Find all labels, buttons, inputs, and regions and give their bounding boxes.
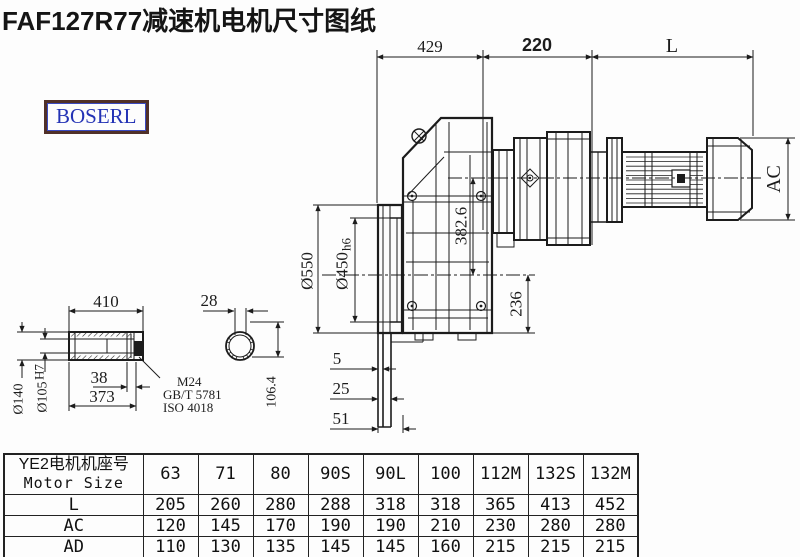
motor-fins — [626, 157, 703, 203]
svg-text:Ø450: Ø450 — [333, 252, 352, 290]
hollow-shaft-view — [69, 332, 160, 378]
col-63: 63 — [143, 454, 198, 494]
r77-input-stage — [493, 132, 607, 247]
dim-140: Ø140 — [12, 383, 27, 414]
dim-5: 5 — [333, 349, 342, 368]
dim-28: 28 — [201, 291, 218, 310]
dim-AC: AC — [763, 165, 785, 193]
table-row-AD: AD 110 130 135 145 145 160 215 215 215 — [4, 536, 638, 557]
svg-text:H7: H7 — [32, 364, 47, 380]
centerlines — [322, 178, 762, 275]
dimension-lines — [313, 50, 795, 433]
gearbox-housing — [403, 118, 492, 340]
dim-550: Ø550 — [298, 252, 317, 290]
header-motor-size: YE2电机机座号 Motor Size — [4, 454, 143, 494]
table-row-AC: AC 120 145 170 190 190 210 230 280 280 — [4, 515, 638, 536]
col-80: 80 — [253, 454, 308, 494]
col-132S: 132S — [528, 454, 583, 494]
dim-373: 373 — [89, 387, 115, 406]
output-flange — [378, 205, 403, 333]
fan-cowl — [707, 138, 752, 220]
mounting-foot — [378, 333, 423, 427]
dim-106-4: 106.4 — [265, 376, 280, 408]
dim-429: 429 — [417, 37, 443, 56]
table-row-L: L 205 260 280 288 318 318 365 413 452 — [4, 494, 638, 515]
col-71: 71 — [198, 454, 253, 494]
svg-text:h6: h6 — [339, 238, 354, 252]
motor — [607, 138, 752, 222]
dim-38: 38 — [91, 368, 108, 387]
dim-105H7: Ø105 H7 — [32, 364, 51, 413]
dim-410: 410 — [93, 292, 119, 311]
col-90L: 90L — [363, 454, 418, 494]
svg-text:Ø105: Ø105 — [36, 381, 51, 412]
col-100: 100 — [418, 454, 473, 494]
dim-51: 51 — [333, 409, 350, 428]
col-112M: 112M — [473, 454, 528, 494]
drawing-page: FAF127R77减速机电机尺寸图纸 BOSERL — [0, 0, 800, 557]
col-90S: 90S — [308, 454, 363, 494]
label-iso4018: ISO 4018 — [163, 400, 213, 415]
dim-25: 25 — [333, 379, 350, 398]
dimension-labels: 429 220 L AC 382.6 236 Ø550 Ø450 h6 5 25… — [12, 35, 786, 428]
dim-220: 220 — [522, 35, 552, 55]
col-132M: 132M — [583, 454, 638, 494]
dim-450h6: Ø450 h6 — [333, 238, 354, 290]
bore-end-view — [226, 308, 254, 360]
table-header-row: YE2电机机座号 Motor Size 63 71 80 90S 90L 100… — [4, 454, 638, 494]
motor-size-table: YE2电机机座号 Motor Size 63 71 80 90S 90L 100… — [3, 453, 639, 557]
dim-236: 236 — [507, 291, 526, 317]
dim-L: L — [666, 35, 678, 57]
dim-382-6: 382.6 — [452, 207, 471, 245]
